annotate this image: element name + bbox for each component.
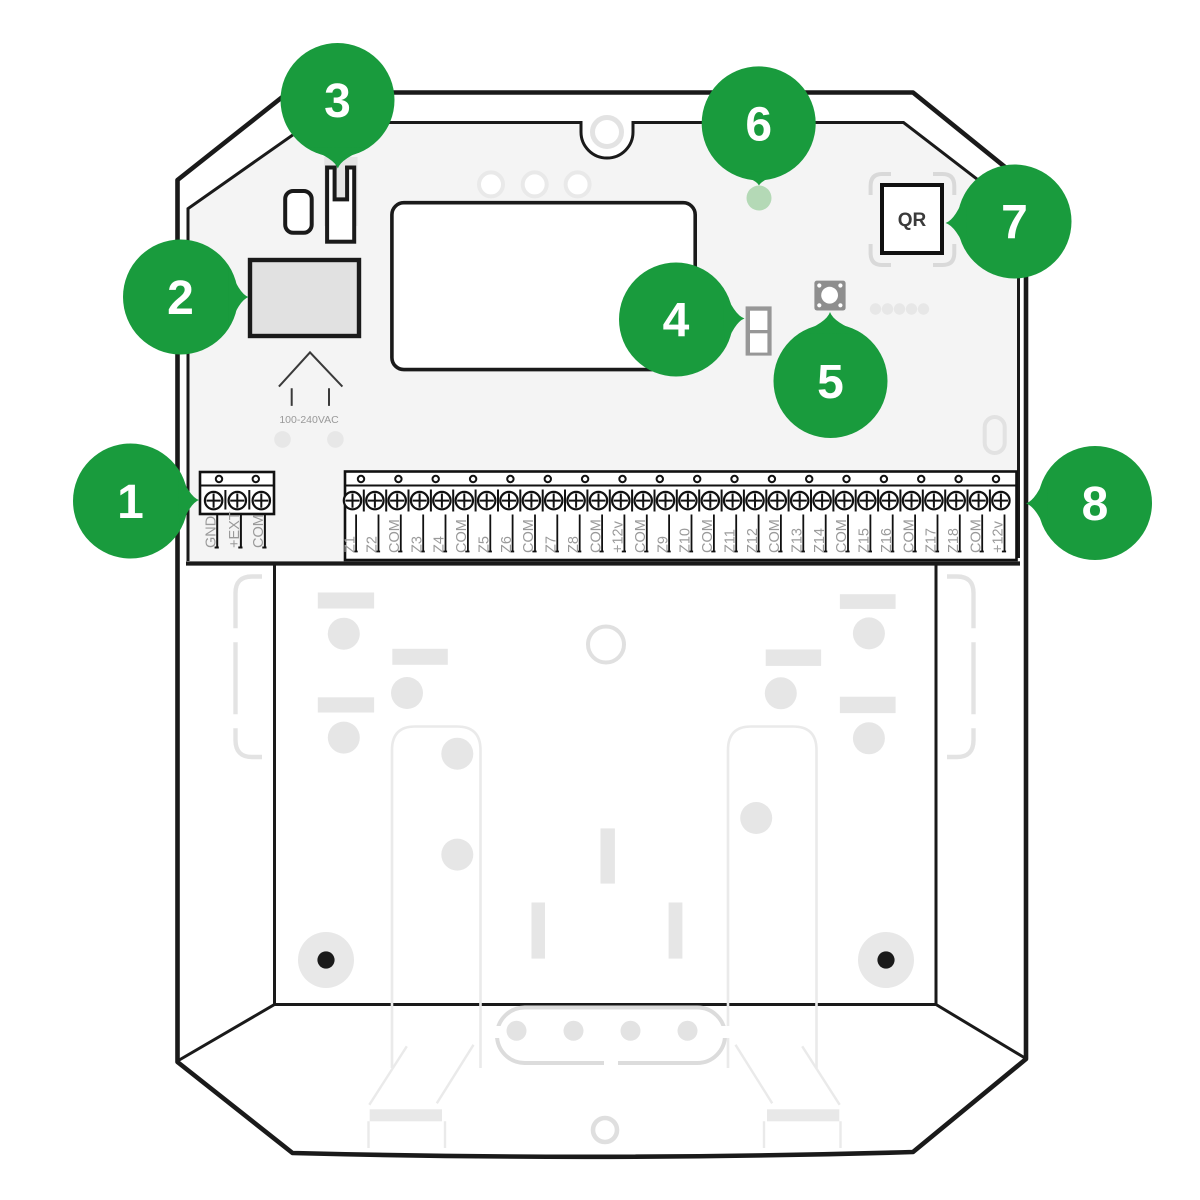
svg-text:COM: COM (454, 519, 470, 553)
svg-text:Z3: Z3 (409, 536, 425, 553)
svg-text:GND: GND (203, 516, 219, 548)
svg-text:Z15: Z15 (857, 528, 873, 553)
svg-text:Z8: Z8 (566, 536, 582, 553)
svg-text:100-240VAC: 100-240VAC (279, 414, 339, 426)
svg-text:1: 1 (117, 476, 144, 529)
svg-text:QR: QR (898, 210, 927, 231)
svg-text:COM: COM (700, 519, 716, 553)
svg-text:COM: COM (633, 519, 649, 553)
svg-text:COM: COM (968, 519, 984, 553)
svg-text:7: 7 (1001, 197, 1028, 250)
svg-text:Z1: Z1 (342, 536, 358, 553)
svg-text:Z4: Z4 (432, 536, 448, 553)
svg-text:+12v: +12v (991, 520, 1007, 553)
svg-text:Z10: Z10 (678, 528, 694, 553)
svg-text:COM: COM (834, 519, 850, 553)
svg-text:+EXT: +EXT (227, 511, 243, 548)
svg-text:Z12: Z12 (745, 528, 761, 553)
svg-text:Z13: Z13 (790, 528, 806, 553)
svg-text:3: 3 (324, 75, 351, 128)
svg-text:2: 2 (167, 272, 194, 325)
svg-text:4: 4 (663, 295, 690, 348)
svg-text:Z2: Z2 (365, 536, 381, 553)
svg-text:Z11: Z11 (722, 529, 738, 553)
svg-text:8: 8 (1082, 478, 1109, 531)
svg-text:Z18: Z18 (946, 528, 962, 553)
svg-text:Z16: Z16 (879, 528, 895, 553)
svg-text:6: 6 (745, 98, 772, 151)
svg-text:Z17: Z17 (924, 528, 940, 553)
svg-text:+12v: +12v (611, 520, 627, 553)
svg-text:Z6: Z6 (499, 536, 515, 553)
svg-text:COM: COM (901, 519, 917, 553)
svg-text:COM: COM (767, 519, 783, 553)
svg-text:COM: COM (521, 519, 537, 553)
svg-text:Z9: Z9 (655, 536, 671, 553)
svg-text:5: 5 (817, 356, 844, 409)
svg-text:Z7: Z7 (544, 536, 560, 553)
svg-text:COM: COM (387, 519, 403, 553)
svg-text:COM: COM (588, 519, 604, 553)
svg-text:Z5: Z5 (477, 536, 493, 553)
svg-text:COM: COM (251, 514, 267, 548)
svg-text:Z14: Z14 (812, 528, 828, 553)
